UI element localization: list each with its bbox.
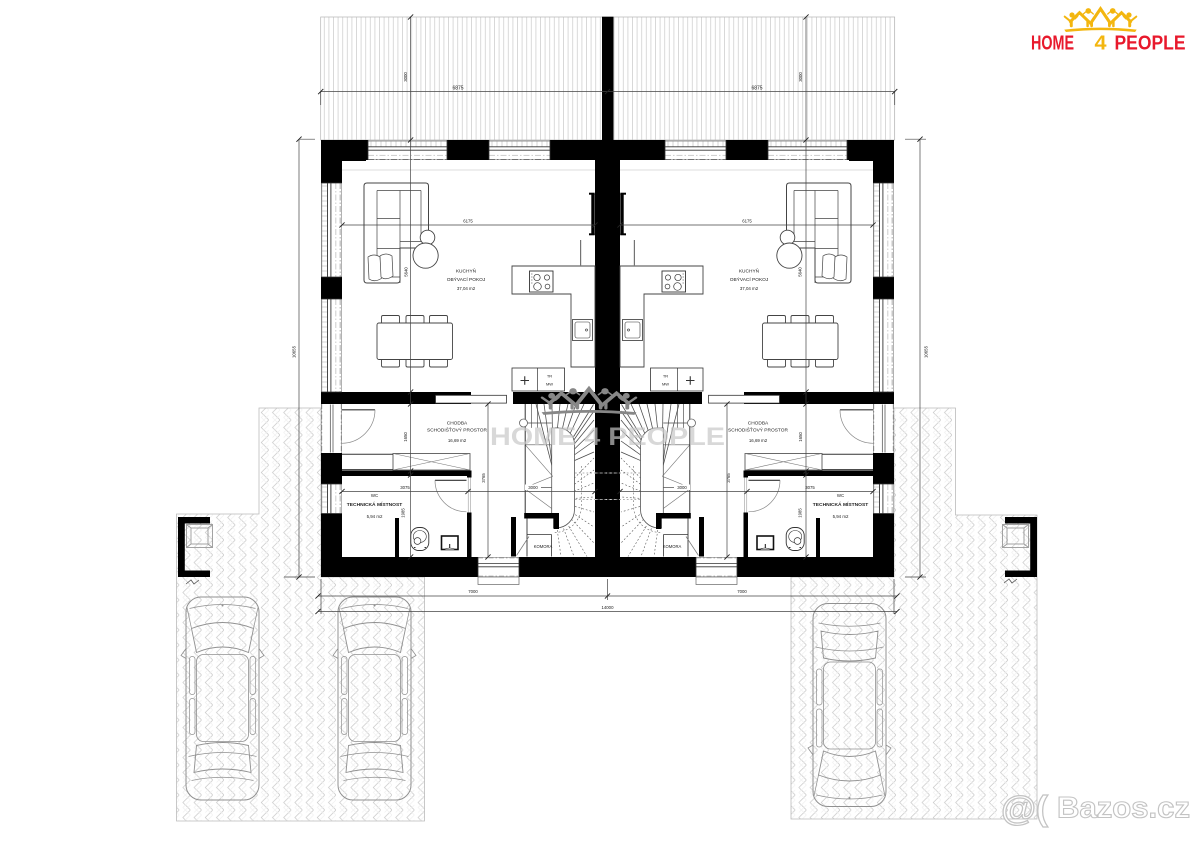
svg-text:KUCHYŇ: KUCHYŇ bbox=[456, 268, 477, 275]
svg-text:PEOPLE: PEOPLE bbox=[1115, 32, 1186, 55]
svg-text:37,04 m2: 37,04 m2 bbox=[740, 286, 759, 291]
svg-text:1985: 1985 bbox=[798, 508, 803, 518]
svg-text:7000: 7000 bbox=[737, 589, 747, 594]
svg-text:10655: 10655 bbox=[292, 345, 297, 358]
svg-text:7000: 7000 bbox=[468, 589, 478, 594]
svg-text:16,69 m2: 16,69 m2 bbox=[749, 438, 768, 443]
svg-text:MW: MW bbox=[546, 382, 553, 387]
svg-text:OBÝVACÍ POKOJ: OBÝVACÍ POKOJ bbox=[447, 276, 486, 283]
svg-text:5,94 m2: 5,94 m2 bbox=[833, 514, 849, 519]
svg-text:1985: 1985 bbox=[401, 508, 406, 518]
svg-text:6875: 6875 bbox=[452, 86, 463, 92]
svg-text:3765: 3765 bbox=[481, 473, 486, 483]
svg-text:5,94 m2: 5,94 m2 bbox=[367, 514, 383, 519]
svg-text:6175: 6175 bbox=[463, 219, 473, 224]
svg-text:3075: 3075 bbox=[805, 485, 815, 490]
svg-text:WC: WC bbox=[837, 493, 844, 498]
svg-text:37,04 m2: 37,04 m2 bbox=[457, 286, 476, 291]
svg-text:3000: 3000 bbox=[528, 485, 538, 490]
svg-text:5640: 5640 bbox=[798, 267, 803, 277]
svg-text:5640: 5640 bbox=[404, 267, 409, 277]
svg-text:3000: 3000 bbox=[677, 485, 687, 490]
svg-text:WC: WC bbox=[371, 493, 378, 498]
svg-text:3075: 3075 bbox=[400, 485, 410, 490]
svg-text:10655: 10655 bbox=[924, 345, 929, 358]
svg-text:16,69 m2: 16,69 m2 bbox=[448, 438, 467, 443]
svg-text:TR: TR bbox=[547, 374, 552, 379]
svg-text:3765: 3765 bbox=[726, 473, 731, 483]
svg-text:1650: 1650 bbox=[403, 432, 408, 442]
svg-text:HOME: HOME bbox=[1031, 32, 1074, 55]
svg-text:1650: 1650 bbox=[798, 432, 803, 442]
svg-text:6875: 6875 bbox=[751, 86, 762, 92]
svg-text:OBÝVACÍ POKOJ: OBÝVACÍ POKOJ bbox=[730, 276, 769, 283]
svg-text:HOME 4 PEOPLE: HOME 4 PEOPLE bbox=[490, 423, 725, 451]
svg-text:3000: 3000 bbox=[403, 72, 408, 82]
svg-text:4: 4 bbox=[1095, 32, 1108, 55]
svg-text:6175: 6175 bbox=[742, 219, 752, 224]
svg-text:KUCHYŇ: KUCHYŇ bbox=[739, 268, 760, 275]
svg-text:Bazos.cz: Bazos.cz bbox=[1057, 792, 1190, 825]
svg-text:MW: MW bbox=[662, 382, 669, 387]
svg-text:CHODBA: CHODBA bbox=[748, 421, 769, 427]
svg-text:KOMORA: KOMORA bbox=[663, 544, 682, 549]
svg-text:KOMORA: KOMORA bbox=[534, 544, 553, 549]
svg-text:TR: TR bbox=[663, 374, 668, 379]
svg-text:@(: @( bbox=[1001, 790, 1049, 828]
svg-text:CHODBA: CHODBA bbox=[447, 421, 468, 427]
svg-text:14000: 14000 bbox=[602, 605, 615, 610]
svg-text:3000: 3000 bbox=[798, 72, 803, 82]
